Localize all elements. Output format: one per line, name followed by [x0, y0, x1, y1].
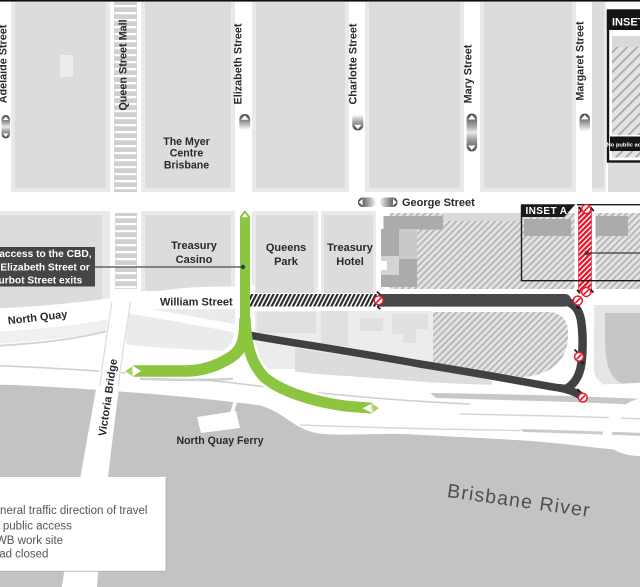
svg-text:Centre: Centre [170, 148, 204, 160]
svg-text:No public access: No public access [607, 143, 640, 149]
svg-text:No public access: No public access [0, 521, 72, 533]
svg-text:Mary Street: Mary Street [463, 44, 475, 103]
svg-text:Margaret Street: Margaret Street [575, 21, 587, 101]
svg-text:INSET A: INSET A [612, 17, 640, 29]
svg-text:Queen Street Mall: Queen Street Mall [118, 19, 130, 110]
svg-text:General traffic direction of t: General traffic direction of travel [0, 505, 147, 517]
svg-text:George Street: George Street [402, 197, 475, 209]
svg-text:use Elizabeth Street or: use Elizabeth Street or [0, 263, 90, 274]
svg-text:Treasury: Treasury [327, 242, 374, 254]
svg-text:Brisbane: Brisbane [164, 159, 209, 171]
svg-text:For access to the CBD,: For access to the CBD, [0, 249, 92, 260]
svg-text:Queens: Queens [266, 242, 306, 254]
svg-text:Elizabeth Street: Elizabeth Street [233, 23, 245, 104]
svg-text:Charlotte Street: Charlotte Street [348, 23, 360, 104]
svg-text:Park: Park [274, 256, 299, 268]
svg-text:William Street: William Street [160, 297, 233, 309]
svg-text:QWB work site: QWB work site [0, 535, 63, 547]
svg-text:North Quay Ferry: North Quay Ferry [176, 435, 263, 447]
svg-text:INSET A: INSET A [526, 206, 568, 217]
svg-text:Casino: Casino [176, 254, 213, 266]
svg-text:The Myer: The Myer [163, 136, 210, 148]
svg-text:Hotel: Hotel [336, 256, 364, 268]
svg-text:Road closed: Road closed [0, 549, 48, 561]
svg-text:Turbot Street exits: Turbot Street exits [0, 276, 83, 287]
svg-text:Adelaide Street: Adelaide Street [0, 24, 10, 103]
svg-text:Treasury: Treasury [171, 240, 218, 252]
